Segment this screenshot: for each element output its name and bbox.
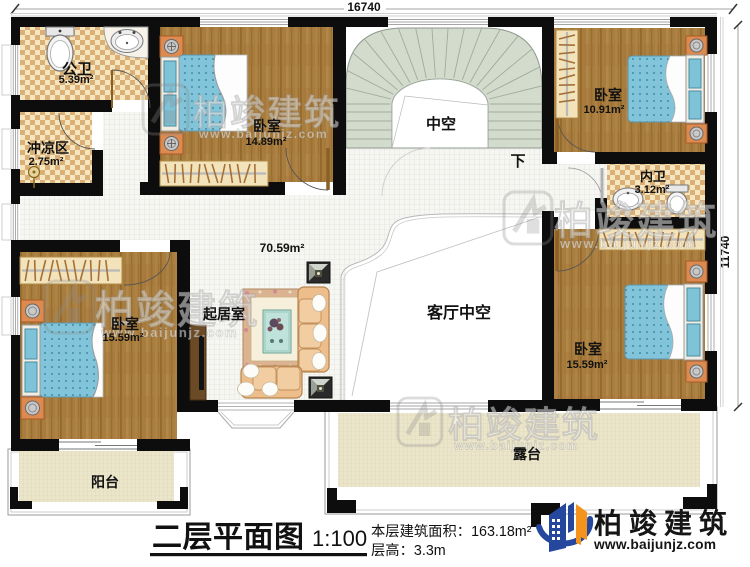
svg-text:冲凉区: 冲凉区 <box>27 140 69 156</box>
svg-text:卧室: 卧室 <box>594 87 622 103</box>
svg-text:客厅中空: 客厅中空 <box>427 303 491 322</box>
svg-text:层高：3.3m: 层高：3.3m <box>371 542 446 559</box>
svg-text:10.91m²: 10.91m² <box>584 104 625 116</box>
svg-text:中空: 中空 <box>426 115 456 133</box>
svg-text:露台: 露台 <box>513 446 541 462</box>
svg-text:柏竣建筑: 柏竣建筑 <box>594 507 734 539</box>
svg-text:卧室: 卧室 <box>253 118 281 134</box>
svg-text:下: 下 <box>510 153 525 170</box>
svg-text:内卫: 内卫 <box>640 169 666 184</box>
svg-text:卧室: 卧室 <box>111 316 139 332</box>
svg-text:14.89m²: 14.89m² <box>246 136 287 148</box>
svg-text:5.39m²: 5.39m² <box>59 74 94 86</box>
svg-text:2.75m²: 2.75m² <box>29 156 64 168</box>
svg-text:15.59m²: 15.59m² <box>103 332 144 344</box>
svg-text:www.baijunjz.com: www.baijunjz.com <box>559 236 697 251</box>
svg-text:本层建筑面积：163.18m²: 本层建筑面积：163.18m² <box>371 523 532 540</box>
svg-text:起居室: 起居室 <box>202 306 245 322</box>
svg-text:15.59m²: 15.59m² <box>567 359 608 371</box>
svg-text:www.baijunjz.com: www.baijunjz.com <box>593 537 716 552</box>
svg-text:70.59m²: 70.59m² <box>260 241 305 255</box>
svg-text:阳台: 阳台 <box>91 474 119 490</box>
svg-text:16740: 16740 <box>347 0 381 14</box>
svg-text:1:100: 1:100 <box>312 526 367 551</box>
svg-text:二层平面图: 二层平面图 <box>152 521 305 554</box>
svg-text:卧室: 卧室 <box>574 341 602 357</box>
svg-text:3.12m²: 3.12m² <box>635 184 670 196</box>
